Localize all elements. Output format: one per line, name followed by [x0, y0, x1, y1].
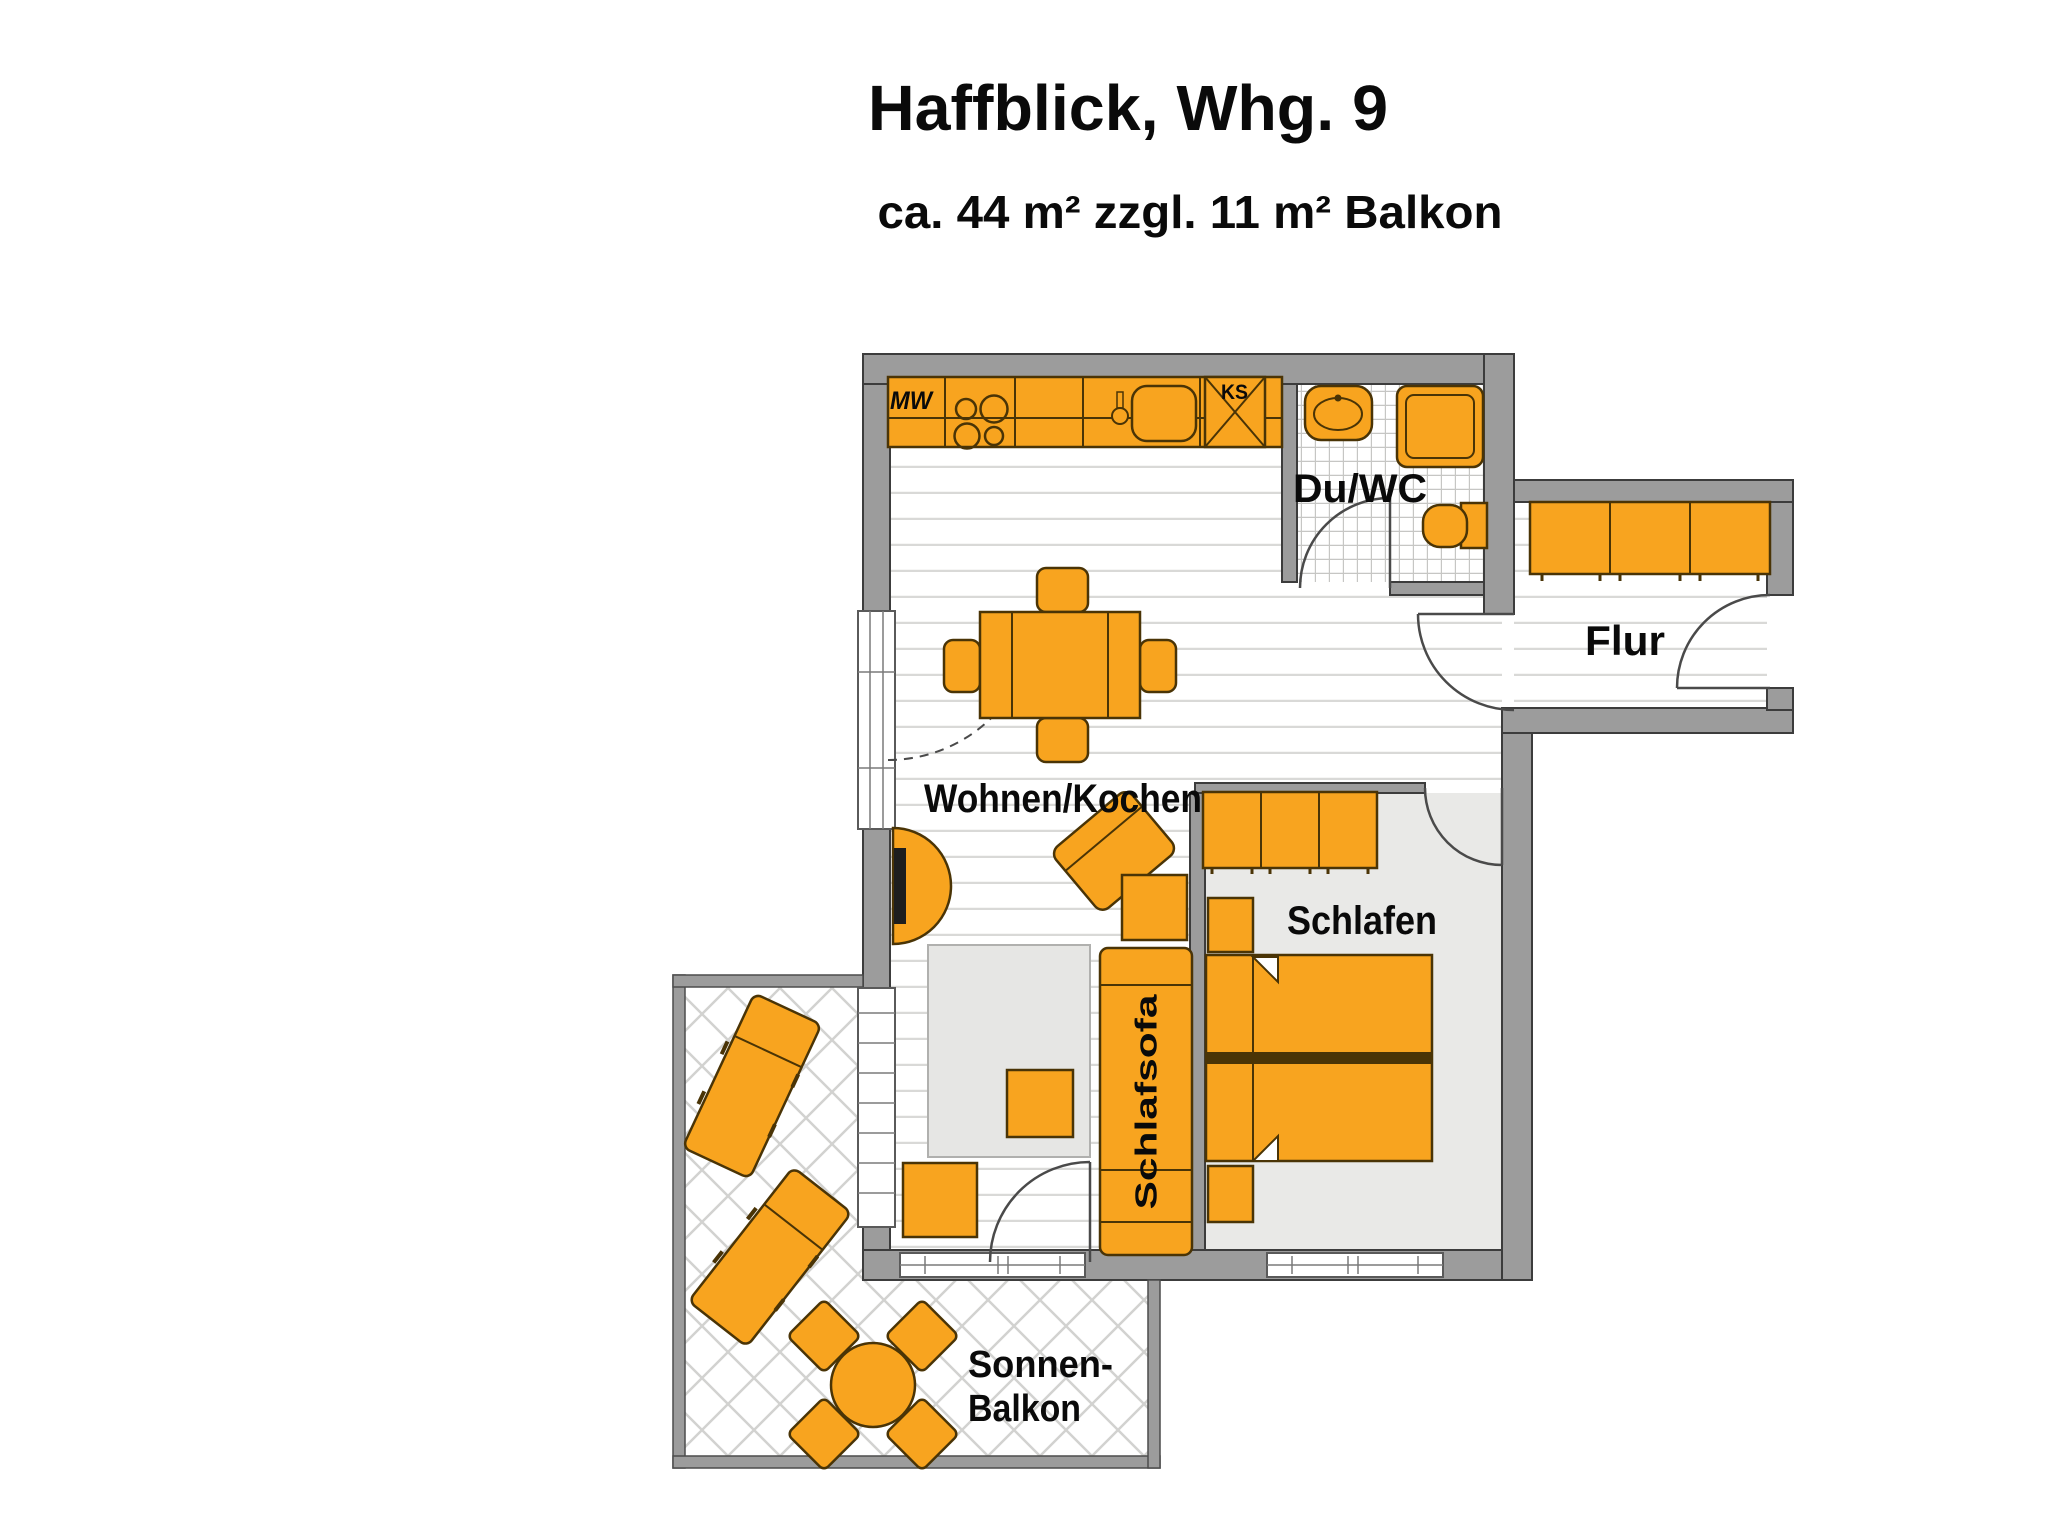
- tv-icon: [894, 848, 906, 924]
- balcony-table: [831, 1343, 915, 1427]
- window-balcony-door-south: [900, 1253, 1085, 1277]
- label-shower-wc: Du/WC: [1293, 467, 1427, 511]
- washbasin-icon: [1305, 386, 1372, 440]
- nightstand-bottom: [1208, 1166, 1253, 1222]
- wall-balcony-right: [1148, 1280, 1160, 1468]
- wall-bath-bottom: [1390, 582, 1484, 595]
- bedroom-wardrobe: [1203, 792, 1377, 874]
- wall-hall-bottom: [1502, 708, 1793, 733]
- label-living-kitchen: Wohnen/Kochen: [924, 777, 1202, 821]
- label-hallway: Flur: [1585, 617, 1665, 664]
- page-subtitle: ca. 44 m² zzgl. 11 m² Balkon: [878, 186, 1503, 238]
- wall-left-middle: [863, 829, 890, 988]
- label-balcony-line1: Sonnen-: [968, 1344, 1113, 1386]
- side-table: [903, 1163, 977, 1237]
- label-balcony-line2: Balkon: [968, 1388, 1081, 1430]
- floor-plan-page: Haffblick, Whg. 9 ca. 44 m² zzgl. 11 m² …: [0, 0, 2048, 1538]
- wall-right-upper: [1484, 354, 1514, 614]
- label-sleeper-sofa: Schlafsofa: [1129, 993, 1164, 1209]
- double-bed: [1206, 955, 1432, 1161]
- wall-hall-top: [1514, 480, 1793, 502]
- window-balcony-west: [858, 988, 895, 1227]
- label-bedroom: Schlafen: [1287, 899, 1437, 943]
- wall-hall-right-lower: [1767, 688, 1793, 710]
- coffee-table: [1007, 1070, 1073, 1137]
- page-title: Haffblick, Whg. 9: [868, 72, 1388, 144]
- dining-table: [980, 612, 1140, 718]
- dining-chair-east: [1140, 640, 1176, 692]
- dining-chair-north: [1037, 568, 1088, 612]
- wall-balcony-left: [673, 975, 685, 1468]
- wall-right-lower: [1502, 710, 1532, 1280]
- sofa-side-table: [1122, 875, 1187, 940]
- wall-balcony-top: [673, 975, 863, 987]
- dining-chair-west: [944, 640, 980, 692]
- nightstand-top: [1208, 898, 1253, 952]
- wall-left-upper: [863, 384, 890, 611]
- label-fridge: KS: [1221, 381, 1248, 404]
- dining-chair-south: [1037, 718, 1088, 762]
- label-microwave: MW: [890, 387, 934, 415]
- shower-icon: [1397, 386, 1483, 467]
- hall-wardrobe: [1530, 502, 1770, 581]
- floor-plan: Haffblick, Whg. 9 ca. 44 m² zzgl. 11 m² …: [0, 0, 2048, 1538]
- toilet-icon: [1423, 503, 1487, 548]
- window-bedroom-south: [1267, 1253, 1443, 1277]
- window-living-west: [858, 611, 895, 829]
